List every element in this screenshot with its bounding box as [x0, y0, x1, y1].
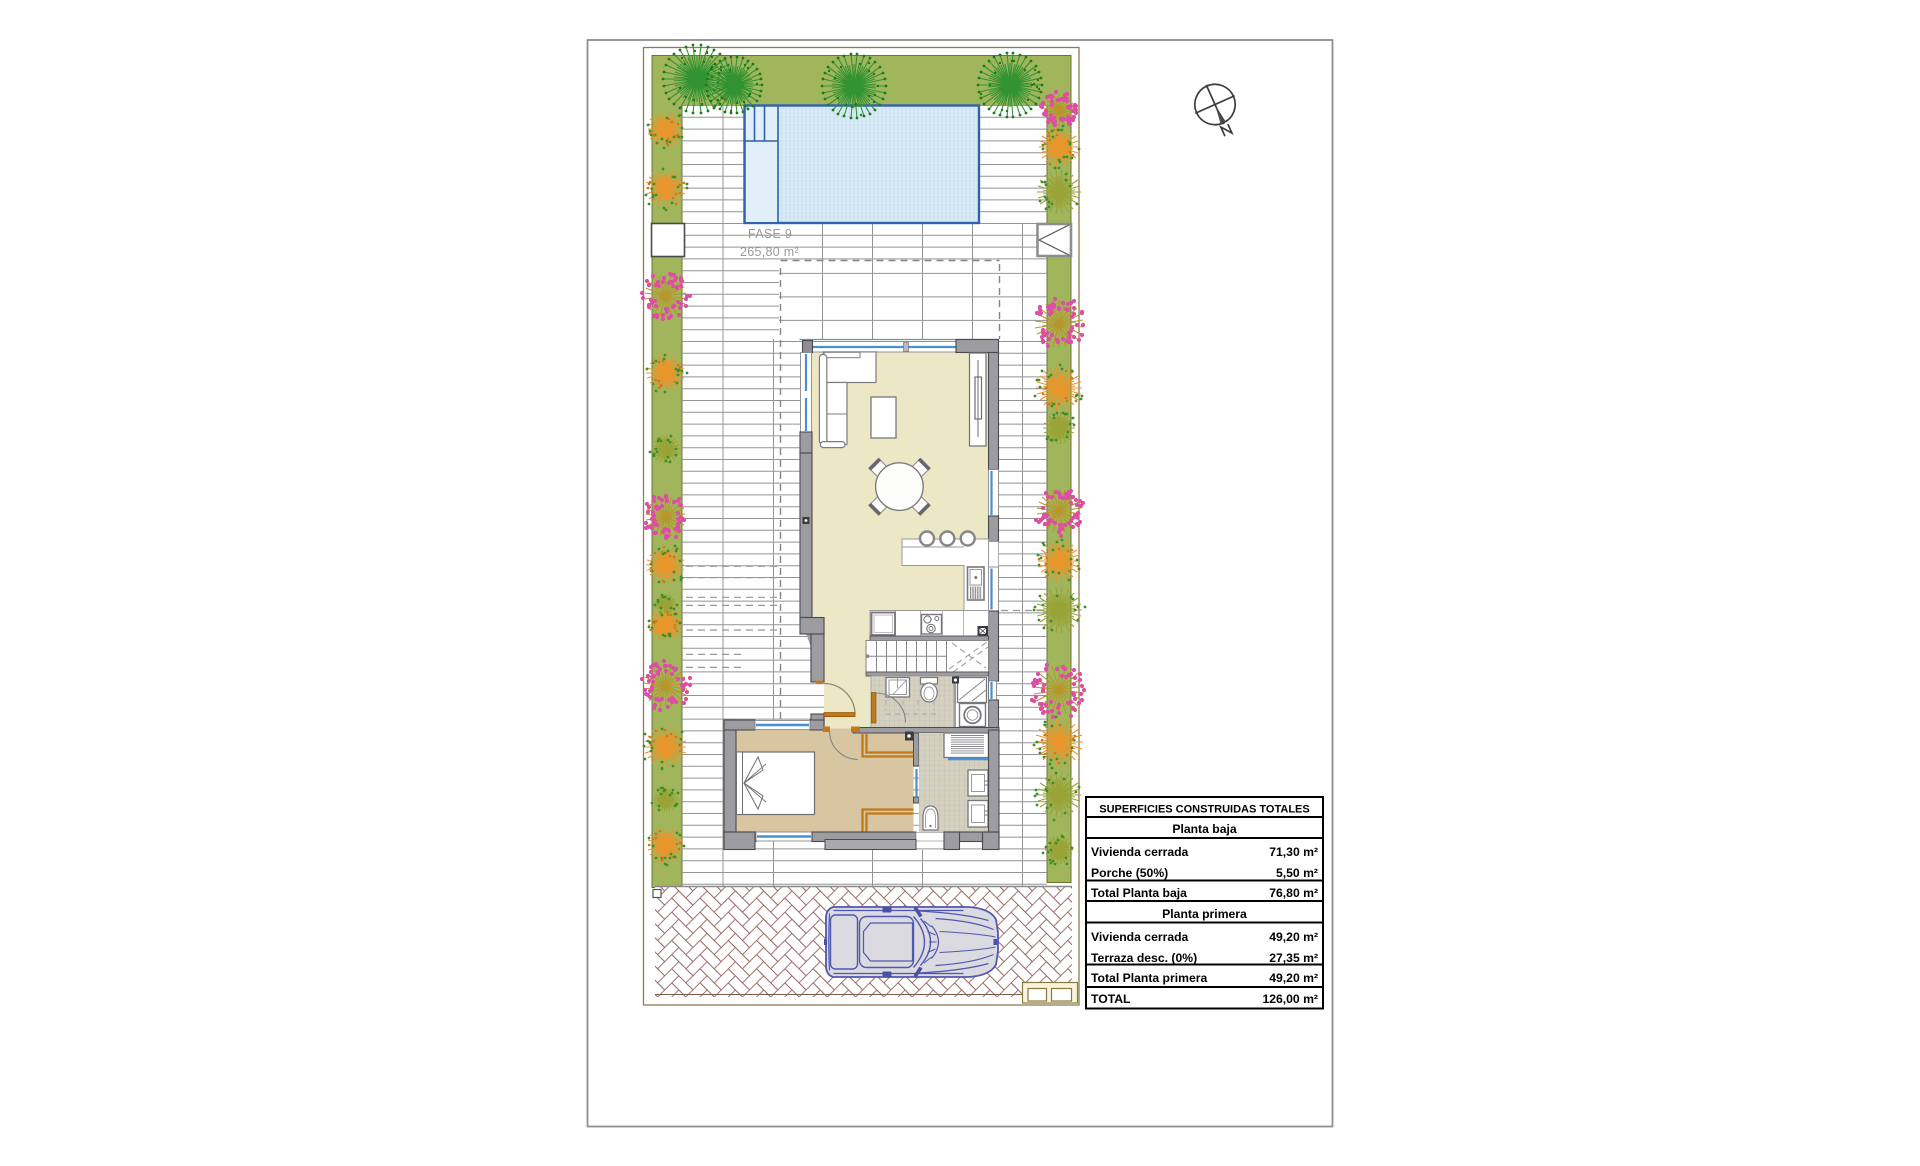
- svg-text:Vivienda cerrada: Vivienda cerrada: [1091, 845, 1189, 859]
- svg-text:71,30 m²: 71,30 m²: [1269, 845, 1318, 859]
- svg-text:TOTAL: TOTAL: [1091, 992, 1131, 1006]
- svg-text:126,00 m²: 126,00 m²: [1262, 992, 1318, 1006]
- svg-text:Planta primera: Planta primera: [1162, 907, 1247, 921]
- svg-text:FASE 9: FASE 9: [748, 227, 792, 241]
- svg-text:Total Planta primera: Total Planta primera: [1091, 971, 1207, 985]
- svg-text:Porche (50%): Porche (50%): [1091, 866, 1168, 880]
- svg-text:Vivienda cerrada: Vivienda cerrada: [1091, 930, 1189, 944]
- svg-text:49,20 m²: 49,20 m²: [1269, 971, 1318, 985]
- svg-text:Total Planta baja: Total Planta baja: [1091, 886, 1187, 900]
- svg-text:Planta baja: Planta baja: [1172, 822, 1237, 836]
- svg-text:265,80 m²: 265,80 m²: [740, 245, 799, 259]
- svg-text:5,50 m²: 5,50 m²: [1276, 866, 1318, 880]
- svg-text:49,20 m²: 49,20 m²: [1269, 930, 1318, 944]
- svg-text:Terraza desc. (0%): Terraza desc. (0%): [1091, 951, 1197, 965]
- svg-text:SUPERFICIES CONSTRUIDAS TOTALE: SUPERFICIES CONSTRUIDAS TOTALES: [1099, 804, 1309, 816]
- svg-text:76,80 m²: 76,80 m²: [1269, 886, 1318, 900]
- svg-text:27,35 m²: 27,35 m²: [1269, 951, 1318, 965]
